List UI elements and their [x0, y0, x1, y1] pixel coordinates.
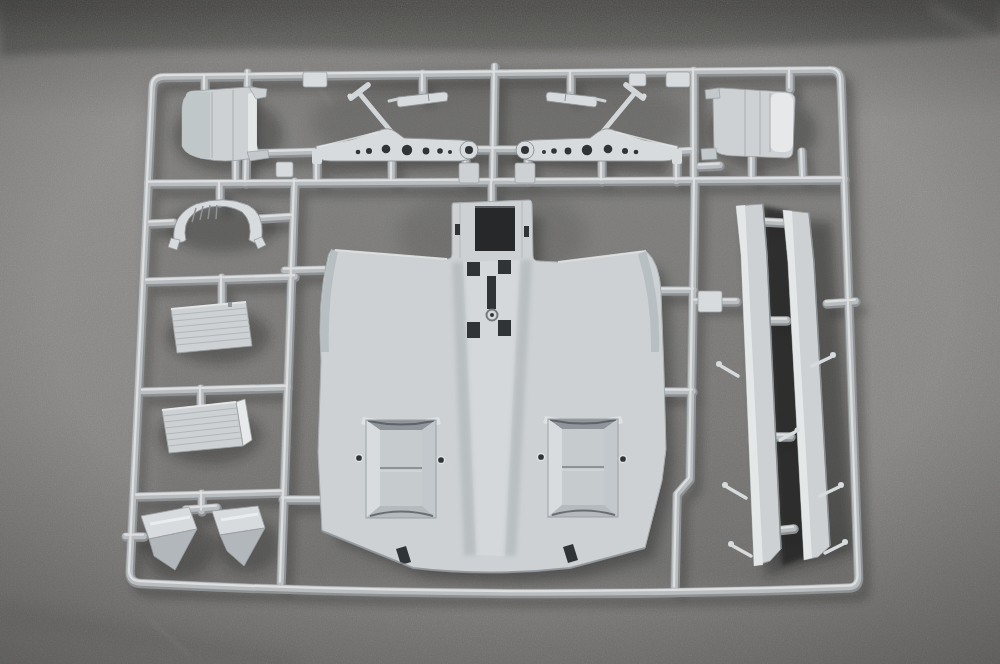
part-fuselage-panel — [318, 200, 666, 573]
fuselage-vent-right — [537, 416, 626, 517]
part-cowl-panel-right — [701, 88, 795, 160]
fuselage-vent-left — [355, 417, 444, 518]
photo-stage — [0, 0, 1000, 664]
sprue-photo — [0, 0, 1000, 664]
part-louvered-box-upper — [171, 302, 252, 353]
part-cowl-panel-left — [182, 87, 269, 161]
